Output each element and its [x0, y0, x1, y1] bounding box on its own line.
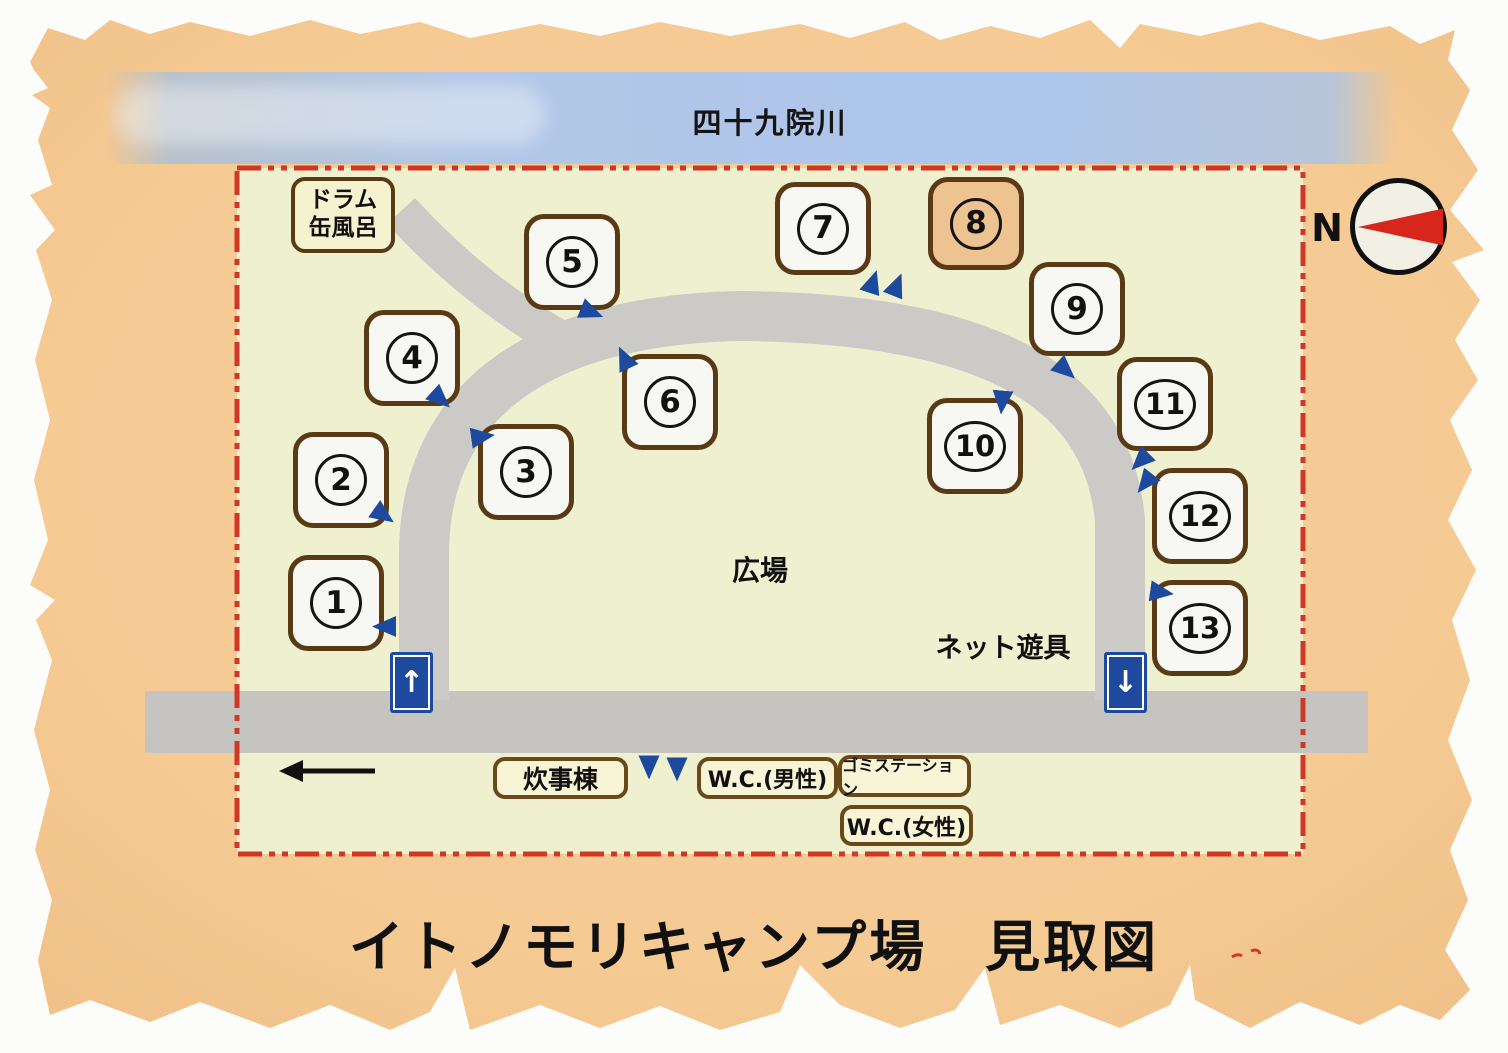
site-box-9: 9	[1029, 262, 1125, 356]
plaza-label: 広場	[700, 549, 820, 589]
entrance-one-way-sign: ↑	[390, 652, 433, 713]
site-box-10: 10	[927, 398, 1023, 494]
roads	[0, 0, 1508, 1053]
site-box-1: 1	[288, 555, 384, 651]
map-title: イトノモリキャンプ場 見取図	[0, 902, 1508, 982]
wc-female-label: W.C.(女性)	[840, 805, 973, 846]
drum-bath-box: ドラム 缶風呂	[291, 177, 395, 253]
main-road	[145, 691, 1368, 753]
garbage-station-label: ゴミステーション	[838, 755, 971, 797]
site-number: 8	[950, 198, 1002, 250]
net-playground-label: ネット遊具	[933, 626, 1073, 665]
compass-icon	[1350, 178, 1447, 275]
site-number: 10	[944, 421, 1006, 472]
up-arrow-icon: ↑	[393, 655, 430, 710]
wc-male-label: W.C.(男性)	[697, 757, 838, 799]
site-box-6: 6	[622, 354, 718, 450]
site-number: 13	[1169, 603, 1231, 654]
site-number: 6	[644, 376, 696, 428]
site-box-8: 8	[928, 177, 1024, 270]
road-direction-arrow	[275, 756, 380, 786]
site-number: 12	[1169, 491, 1231, 542]
site-box-3: 3	[478, 424, 574, 520]
compass-needle-icon	[1358, 204, 1443, 250]
site-number: 2	[315, 454, 367, 506]
site-number: 9	[1051, 283, 1103, 335]
drum-bath-line2: 缶風呂	[309, 215, 378, 243]
site-box-5: 5	[524, 214, 620, 310]
exit-one-way-sign: ↓	[1104, 652, 1147, 713]
drum-bath-line1: ドラム	[309, 187, 377, 215]
site-number: 1	[310, 577, 362, 629]
site-number: 4	[386, 332, 438, 384]
compass-n-label: N	[1305, 206, 1349, 250]
down-arrow-icon: ↓	[1107, 655, 1144, 710]
site-number: 5	[546, 236, 598, 288]
site-box-12: 12	[1152, 468, 1248, 564]
cooking-hall-label: 炊事棟	[493, 757, 628, 799]
site-number: 11	[1134, 379, 1196, 430]
site-box-7: 7	[775, 182, 871, 275]
site-box-4: 4	[364, 310, 460, 406]
site-number: 7	[797, 203, 849, 255]
scanned-campground-map: 四十九院川 ドラム 缶風呂 1 2 3 4 5 6 7 8 9 10 11 12…	[0, 0, 1508, 1053]
site-number: 3	[500, 446, 552, 498]
site-box-11: 11	[1117, 357, 1213, 451]
